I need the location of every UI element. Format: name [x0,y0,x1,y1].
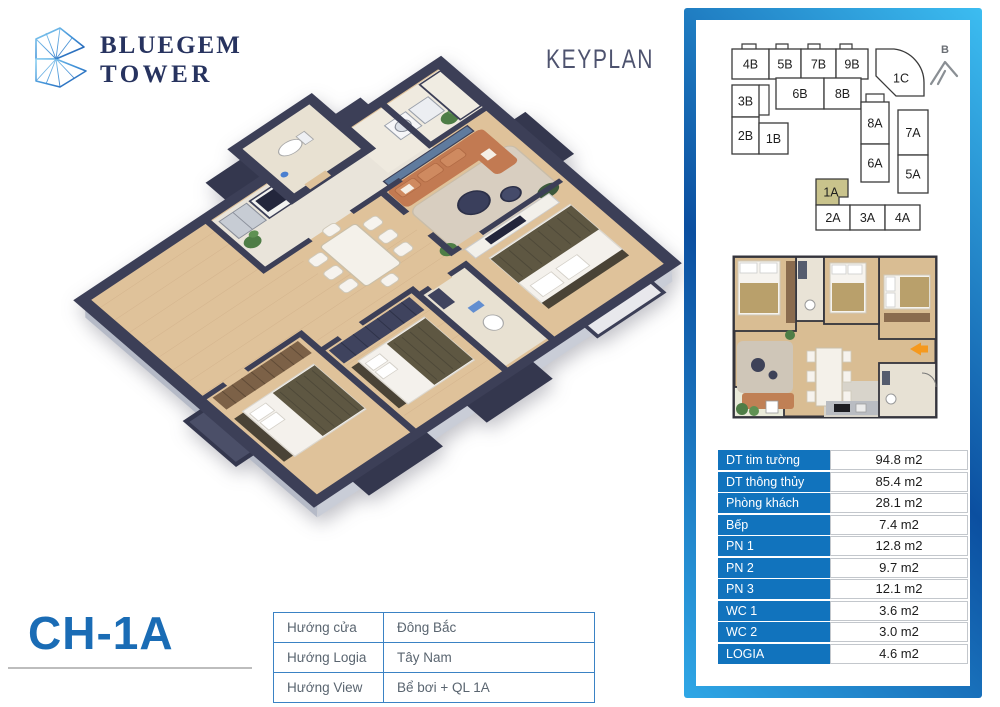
info-panel: 4B5B7B9B1C3B6B8B2B1B8A7A6A5A1A2A3A4A B [684,8,982,698]
area-value: 7.4 m2 [830,515,968,535]
keyplan-unit-label: 9B [844,58,859,72]
direction-value: Bể bơi + QL 1A [384,673,594,702]
direction-label: Hướng Logia [274,643,384,672]
area-value: 3.0 m2 [830,622,968,642]
keyplan-map: 4B5B7B9B1C3B6B8B2B1B8A7A6A5A1A2A3A4A B [698,20,968,245]
keyplan-unit-label: 7B [811,58,826,72]
keyplan-unit-label: 3B [738,95,753,109]
keyplan-unit-label: 2A [825,211,841,225]
keyplan-unit-label: 8B [835,87,850,101]
area-row: Phòng khách28.1 m2 [718,493,968,513]
direction-row: Hướng cửaĐông Bắc [274,613,594,643]
keyplan-unit-label: 1A [823,186,839,200]
compass-label: B [941,44,949,56]
area-row: PN 112.8 m2 [718,536,968,556]
area-value: 85.4 m2 [830,472,968,492]
keyplan-unit-label: 7A [905,126,921,140]
area-value: 94.8 m2 [830,450,968,470]
area-label: DT thông thủy [718,472,830,492]
area-table: DT tim tường94.8 m2DT thông thủy85.4 m2P… [718,450,968,665]
area-row: PN 312.1 m2 [718,579,968,599]
area-label: Bếp [718,515,830,535]
area-label: Phòng khách [718,493,830,513]
keyplan-unit-label: 4A [895,211,911,225]
keyplan-unit-label: 8A [867,117,883,131]
keyplan-unit-label: 3A [860,211,876,225]
compass-icon: B [931,44,957,84]
area-label: DT tim tường [718,450,830,470]
area-row: DT tim tường94.8 m2 [718,450,968,470]
area-value: 9.7 m2 [830,558,968,578]
direction-label: Hướng View [274,673,384,702]
floorplan-2d-mini [728,253,942,429]
area-label: LOGIA [718,644,830,664]
unit-title: CH-1A [28,606,174,660]
keyplan-unit-label: 1C [893,72,909,86]
direction-row: Hướng LogiaTây Nam [274,643,594,673]
keyplan-unit-label: 1B [766,132,781,146]
area-label: WC 1 [718,601,830,621]
direction-table: Hướng cửaĐông BắcHướng LogiaTây NamHướng… [273,612,595,703]
area-value: 12.8 m2 [830,536,968,556]
area-row: LOGIA4.6 m2 [718,644,968,664]
brochure-page: BLUEGEM TOWER KEYPLAN [0,0,1000,707]
area-value: 12.1 m2 [830,579,968,599]
area-label: PN 2 [718,558,830,578]
direction-value: Đông Bắc [384,613,594,642]
area-row: DT thông thủy85.4 m2 [718,472,968,492]
keyplan-unit-label: 6B [792,87,807,101]
keyplan-unit-label: 5B [777,58,792,72]
direction-value: Tây Nam [384,643,594,672]
area-row: PN 29.7 m2 [718,558,968,578]
area-value: 28.1 m2 [830,493,968,513]
keyplan-unit-label: 6A [867,157,883,171]
keyplan-unit-label: 5A [905,168,921,182]
area-row: WC 13.6 m2 [718,601,968,621]
area-label: PN 3 [718,579,830,599]
direction-label: Hướng cửa [274,613,384,642]
title-underline [8,667,252,669]
area-row: WC 23.0 m2 [718,622,968,642]
area-row: Bếp7.4 m2 [718,515,968,535]
area-value: 4.6 m2 [830,644,968,664]
direction-row: Hướng ViewBể bơi + QL 1A [274,673,594,703]
area-label: WC 2 [718,622,830,642]
keyplan-unit-label: 4B [743,58,758,72]
area-label: PN 1 [718,536,830,556]
keyplan-unit-label: 2B [738,129,753,143]
floorplan-3d [0,30,700,630]
area-value: 3.6 m2 [830,601,968,621]
